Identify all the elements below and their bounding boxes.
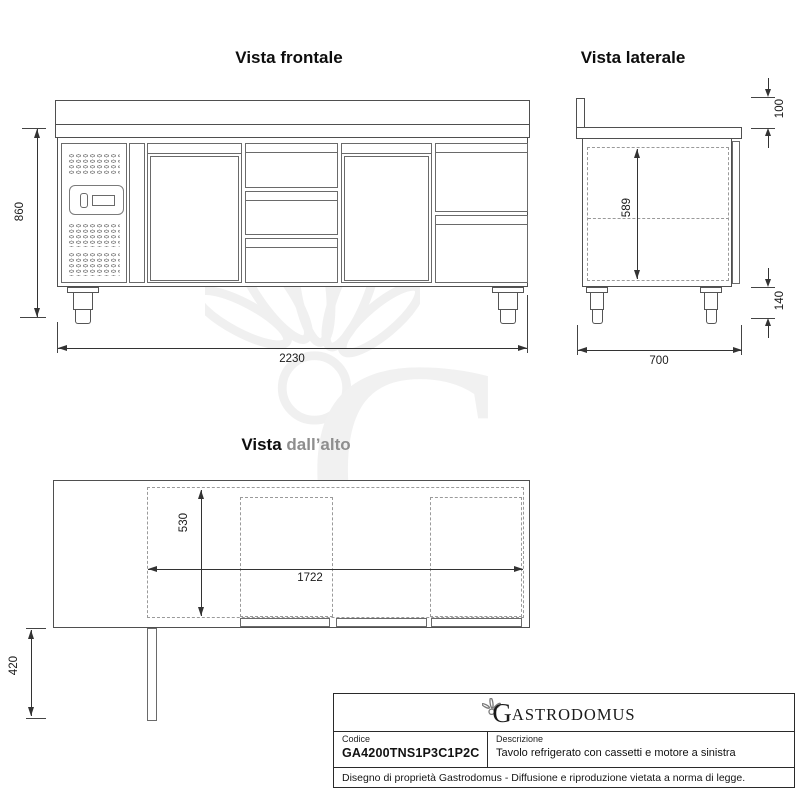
- disclaimer: Disegno di proprietà Gastrodomus - Diffu…: [334, 768, 794, 787]
- front-worktop: [55, 124, 530, 138]
- door-panel: [344, 156, 429, 281]
- dim-label: 530: [178, 513, 190, 532]
- title-block: GASTRODOMUS Codice GA4200TNS1P3C1P2C Des…: [333, 693, 795, 788]
- top-open-door: [147, 628, 157, 721]
- door-1: [147, 143, 242, 283]
- top-drawer-unit-1-dashed: [240, 497, 333, 617]
- drawer: [245, 238, 338, 283]
- top-view-title-prefix: Vista: [241, 435, 281, 454]
- dim-label: 589: [621, 198, 633, 217]
- door-rail: [148, 144, 241, 154]
- top-drawer-unit-2-dashed: [430, 497, 522, 617]
- side-rear-leg: [586, 287, 608, 324]
- brand-logo: GASTRODOMUS: [334, 701, 794, 725]
- door-panel: [150, 156, 239, 281]
- dim-label: 2230: [242, 353, 342, 365]
- brand-initial: G: [492, 698, 512, 728]
- title-block-logo-row: GASTRODOMUS: [334, 694, 794, 732]
- dim-label: 1722: [270, 572, 350, 584]
- motor-compartment: [61, 143, 127, 283]
- description-cell: Descrizione Tavolo refrigerato con casse…: [488, 732, 794, 767]
- code-cell: Codice GA4200TNS1P3C1P2C: [334, 732, 488, 767]
- top-view-title: Vista dall’alto: [196, 435, 396, 455]
- description-label: Descrizione: [496, 734, 786, 744]
- filler-strip: [129, 143, 145, 283]
- brand-rest: ASTRODOMUS: [512, 705, 636, 724]
- drawer-stack-2: [435, 143, 528, 283]
- code-label: Codice: [342, 734, 479, 744]
- control-display: [92, 195, 115, 206]
- front-backsplash: [55, 100, 530, 126]
- drawer: [245, 143, 338, 188]
- front-view-title: Vista frontale: [189, 48, 389, 68]
- front-body: [57, 137, 528, 287]
- top-front-strip: [336, 618, 427, 627]
- side-interior-shelf-line: [588, 218, 729, 219]
- side-front-leg: [700, 287, 722, 324]
- side-view-title: Vista laterale: [553, 48, 713, 68]
- title-block-fields: Codice GA4200TNS1P3C1P2C Descrizione Tav…: [334, 732, 794, 768]
- side-backsplash: [576, 98, 585, 129]
- ventilation-grille: [68, 223, 120, 247]
- control-panel: [69, 185, 124, 215]
- code-value: GA4200TNS1P3C1P2C: [342, 746, 479, 760]
- dim-label: 860: [14, 202, 26, 221]
- top-front-strip: [240, 618, 330, 627]
- control-switch: [80, 193, 88, 208]
- front-right-leg: [492, 287, 524, 324]
- door-2: [341, 143, 432, 283]
- drawer: [435, 215, 528, 284]
- ventilation-grille: [68, 153, 120, 175]
- ventilation-grille: [68, 252, 120, 276]
- door-rail: [342, 144, 431, 154]
- dim-label: 700: [609, 355, 709, 367]
- side-interior-dashed: [587, 147, 729, 281]
- dim-label: 420: [8, 656, 20, 675]
- dim-label: 100: [774, 99, 786, 118]
- dim-label: 140: [774, 291, 786, 310]
- description-value: Tavolo refrigerato con cassetti e motore…: [496, 747, 786, 759]
- drawer: [245, 191, 338, 236]
- front-left-leg: [67, 287, 99, 324]
- top-view-title-suffix: dall’alto: [286, 435, 350, 454]
- top-front-strip: [431, 618, 522, 627]
- drawer-stack-3: [245, 143, 338, 283]
- side-door-front: [732, 141, 740, 284]
- technical-drawing-sheet: G Vista frontale: [0, 0, 800, 800]
- drawer: [435, 143, 528, 212]
